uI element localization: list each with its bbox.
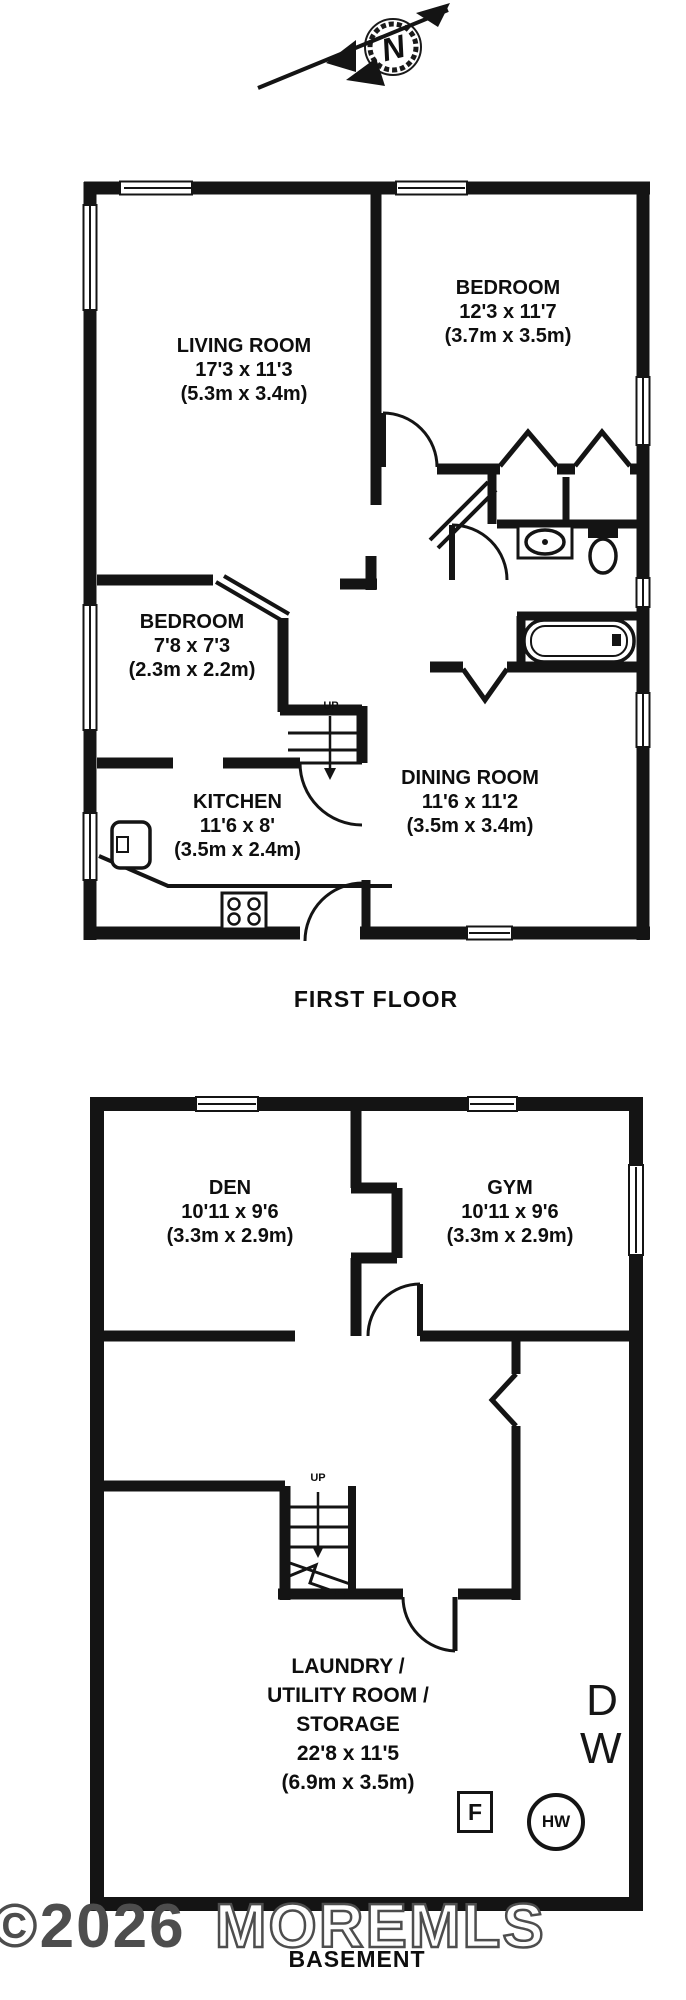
- floor-plan-page: N: [0, 0, 686, 2000]
- room-name: STORAGE: [223, 1710, 473, 1739]
- room-name: KITCHEN: [125, 790, 350, 814]
- bathtub-icon: [524, 620, 634, 662]
- furnace-symbol: F: [457, 1791, 493, 1833]
- room-name: GYM: [400, 1176, 620, 1200]
- basement-stairs: [287, 1486, 352, 1597]
- room-dims-m: (5.3m x 3.4m): [114, 382, 374, 406]
- room-dims-m: (3.7m x 3.5m): [388, 324, 628, 348]
- room-dims-ft: 10'11 x 9'6: [120, 1200, 340, 1224]
- room-name: DINING ROOM: [355, 766, 585, 790]
- first-floor-stairs-up-label: UP: [323, 700, 338, 712]
- first-floor-title: FIRST FLOOR: [216, 986, 536, 1013]
- compass-icon: N: [258, 3, 450, 88]
- room-name: LIVING ROOM: [114, 334, 374, 358]
- washer-label: W: [580, 1726, 620, 1772]
- room-label-den: DEN 10'11 x 9'6 (3.3m x 2.9m): [120, 1176, 340, 1248]
- room-name: LAUNDRY /: [223, 1652, 473, 1681]
- basement-stairs-up-label: UP: [310, 1472, 325, 1484]
- room-dims-ft: 11'6 x 11'2: [355, 790, 585, 814]
- room-dims-m: (3.3m x 2.9m): [120, 1224, 340, 1248]
- room-name: BEDROOM: [82, 610, 302, 634]
- storage-bifold-door: [492, 1374, 516, 1426]
- furnace-label: F: [468, 1799, 482, 1826]
- room-dims-m: (6.9m x 3.5m): [223, 1768, 473, 1797]
- hot-water-heater-label: HW: [542, 1812, 570, 1832]
- room-label-kitchen: KITCHEN 11'6 x 8' (3.5m x 2.4m): [125, 790, 350, 862]
- room-label-living-room: LIVING ROOM 17'3 x 11'3 (5.3m x 3.4m): [114, 334, 374, 406]
- room-name: UTILITY ROOM /: [223, 1681, 473, 1710]
- room-dims-m: (2.3m x 2.2m): [82, 658, 302, 682]
- room-label-bedroom-main: BEDROOM 12'3 x 11'7 (3.7m x 3.5m): [388, 276, 628, 348]
- watermark-year: ©2026: [0, 1892, 186, 1961]
- room-dims-ft: 7'8 x 7'3: [82, 634, 302, 658]
- dryer-label: D: [582, 1678, 622, 1724]
- room-dims-m: (3.5m x 2.4m): [125, 838, 350, 862]
- room-dims-m: (3.5m x 3.4m): [355, 814, 585, 838]
- room-dims-ft: 12'3 x 11'7: [388, 300, 628, 324]
- room-name: BEDROOM: [388, 276, 628, 300]
- hot-water-heater-symbol: HW: [527, 1793, 585, 1851]
- room-name: DEN: [120, 1176, 340, 1200]
- room-dims-ft: 10'11 x 9'6: [400, 1200, 620, 1224]
- toilet-icon: [588, 526, 618, 573]
- room-dims-ft: 22'8 x 11'5: [223, 1739, 473, 1768]
- room-dims-ft: 17'3 x 11'3: [114, 358, 374, 382]
- bathroom-sink-icon: [518, 526, 572, 558]
- room-dims-ft: 11'6 x 8': [125, 814, 350, 838]
- stove-icon: [222, 893, 266, 929]
- room-label-bedroom-small: BEDROOM 7'8 x 7'3 (2.3m x 2.2m): [82, 610, 302, 682]
- room-label-gym: GYM 10'11 x 9'6 (3.3m x 2.9m): [400, 1176, 620, 1248]
- basement-title: BASEMENT: [197, 1946, 517, 1973]
- room-label-dining-room: DINING ROOM 11'6 x 11'2 (3.5m x 3.4m): [355, 766, 585, 838]
- room-dims-m: (3.3m x 2.9m): [400, 1224, 620, 1248]
- room-label-laundry: LAUNDRY / UTILITY ROOM / STORAGE 22'8 x …: [223, 1652, 473, 1797]
